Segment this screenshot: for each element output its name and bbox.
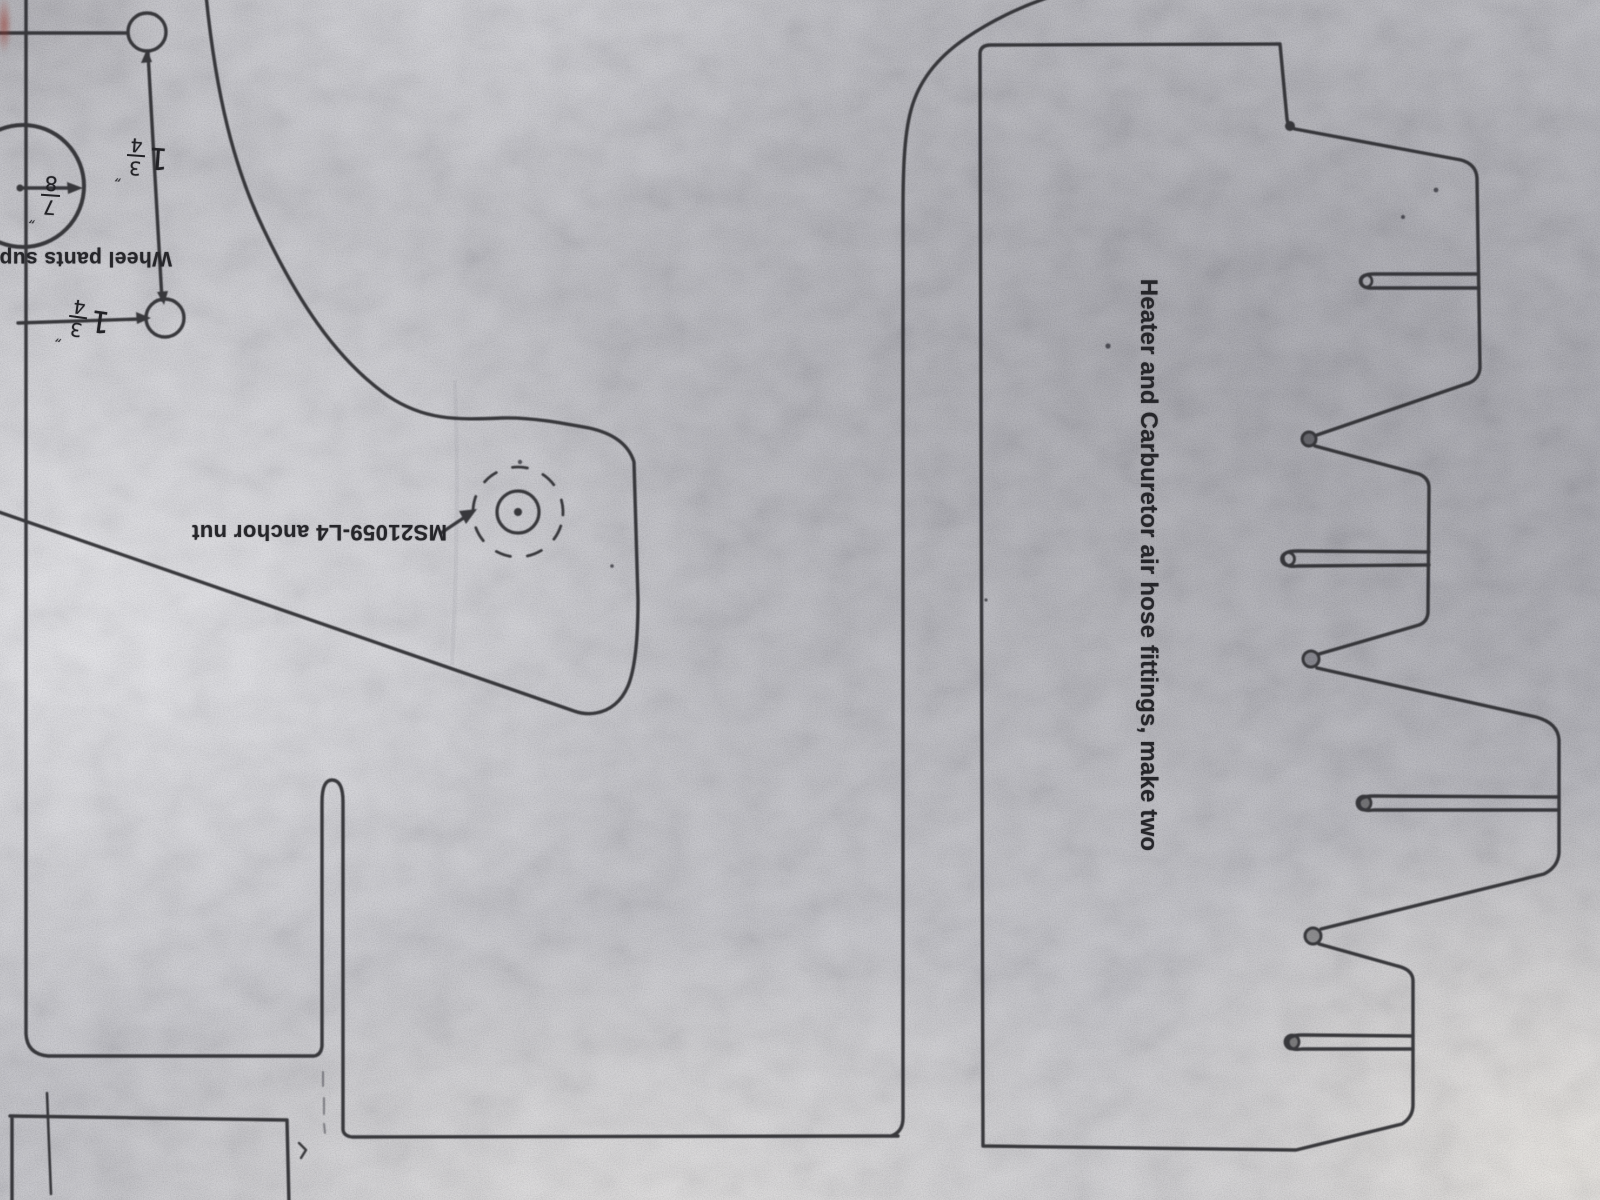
slot-3-end-circle (1357, 796, 1371, 810)
dimension-fraction: 3 4 (66, 295, 90, 340)
inch-mark: ″ (28, 206, 36, 224)
anchor-nut-center-dot (514, 508, 522, 516)
v-point-circle-2 (1303, 651, 1319, 667)
template-linework (0, 0, 1600, 1200)
notch-blob-top (1285, 121, 1295, 131)
dimension-1-3-4-top: 1 3 4 ″ (95, 125, 189, 187)
heater-fittings-label: Heater and Carburetor air hose fittings,… (1128, 265, 1162, 865)
dimension-whole: 1 (148, 142, 169, 173)
v-point-circle-1 (1302, 432, 1316, 446)
dimension-fraction: 3 4 (125, 134, 146, 178)
dimension-7-8-hole: 7 8 ″ (13, 163, 77, 227)
inch-mark: ″ (114, 164, 122, 182)
paper-grain-texture (0, 0, 1600, 1200)
wheel-pants-label: Wheel pants supp (0, 246, 172, 270)
photographed-template-sheet: Wheel pants supp MS21059-L4 anchor nut H… (0, 0, 1600, 1200)
v-point-circle-3 (1305, 928, 1321, 944)
dimension-fraction: 7 8 (39, 172, 61, 218)
slot-4-end-circle (1285, 1035, 1299, 1049)
inch-mark: ″ (54, 324, 63, 343)
anchor-nut-label: MS21059-L4 anchor nut (147, 519, 447, 545)
dimension-whole: 1 (89, 304, 112, 336)
